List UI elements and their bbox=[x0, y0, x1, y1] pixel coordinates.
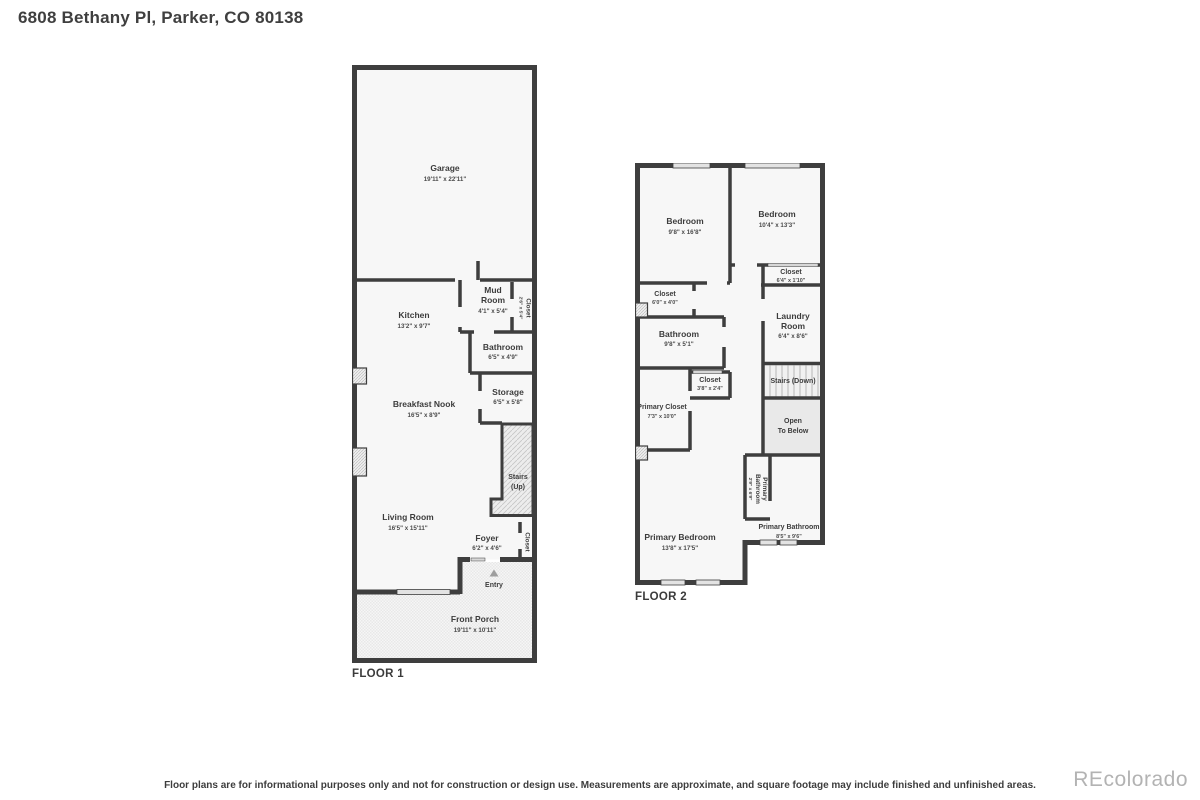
room-storage: Storage 6'5" x 5'8" bbox=[492, 387, 524, 406]
stairs-down-label: Stairs (Down) bbox=[770, 378, 815, 385]
room-foyer: Foyer 6'2" x 4'6" bbox=[472, 533, 502, 552]
primary-closet-name: Primary Closet bbox=[637, 404, 687, 411]
living-room-window bbox=[397, 590, 450, 595]
mud-closet-dims: 2'6" x 5'4" bbox=[518, 297, 524, 320]
closet-hall-dims: 3'8" x 2'4" bbox=[697, 386, 723, 392]
foyer-dims: 6'2" x 4'6" bbox=[472, 545, 502, 552]
garage-name: Garage bbox=[430, 163, 460, 173]
room-stairs-down: Stairs (Down) bbox=[770, 378, 815, 385]
bedroom-right-name: Bedroom bbox=[758, 209, 796, 219]
kitchen-name: Kitchen bbox=[398, 310, 429, 320]
primary-bedroom-window-2 bbox=[696, 580, 720, 585]
open-to-below-name: Open bbox=[784, 418, 802, 425]
primary-closet-dims: 7'3" x 10'0" bbox=[648, 414, 677, 420]
breakfast-nook-dims: 16'5" x 8'9" bbox=[408, 412, 441, 419]
primary-bedroom-dims: 13'8" x 17'5" bbox=[662, 545, 698, 552]
closet-right-dims: 6'4" x 1'10" bbox=[777, 278, 806, 284]
closet-right-sliding-door bbox=[768, 263, 818, 266]
bathroom-f1-name: Bathroom bbox=[483, 342, 524, 352]
floor2-wall-window-1 bbox=[636, 303, 648, 317]
closet-right-name: Closet bbox=[780, 269, 802, 276]
disclaimer-text: Floor plans are for informational purpos… bbox=[0, 780, 1200, 791]
storage-dims: 6'5" x 5'8" bbox=[493, 399, 523, 406]
bathroom-f2-name: Bathroom bbox=[659, 329, 700, 339]
entry-label: Entry bbox=[485, 582, 503, 589]
stairs-up-name2: (Up) bbox=[511, 484, 525, 491]
room-primary-bath-wc: Primary Bathroom 2'9" x 6'9" bbox=[747, 474, 768, 504]
laundry-name2: Room bbox=[781, 321, 806, 331]
primary-bathroom-name: Primary Bathroom bbox=[758, 524, 819, 531]
mud-closet-name: Closet bbox=[525, 298, 532, 318]
front-porch-dims: 19'11" x 10'11" bbox=[454, 627, 497, 634]
room-bathroom-f1: Bathroom 6'5" x 4'9" bbox=[483, 342, 524, 361]
living-wall-window bbox=[353, 448, 367, 476]
bedroom-right-dims: 10'4" x 13'3" bbox=[759, 222, 795, 229]
laundry-name: Laundry bbox=[776, 311, 810, 321]
closet-hall-sliding-door bbox=[693, 370, 722, 373]
kitchen-wall-window bbox=[353, 368, 367, 384]
bedroom-left-dims: 9'8" x 16'8" bbox=[669, 229, 702, 236]
garage-dims: 19'11" x 22'11" bbox=[424, 176, 467, 183]
watermark-logo: REcolorado bbox=[1073, 768, 1188, 792]
bedroom-left-name: Bedroom bbox=[666, 216, 704, 226]
bedroom-left-window bbox=[673, 163, 710, 168]
primary-bedroom-name: Primary Bedroom bbox=[644, 532, 716, 542]
open-to-below-area bbox=[765, 400, 821, 454]
mud-room-dims: 4'1" x 5'4" bbox=[478, 308, 508, 315]
primary-bathroom-dims: 8'5" x 9'6" bbox=[776, 534, 802, 540]
primary-bathroom-window-1 bbox=[760, 540, 777, 545]
primary-bath-wc-name: Primary bbox=[761, 477, 768, 501]
primary-bath-wc-name2: Bathroom bbox=[754, 474, 761, 504]
kitchen-dims: 13'2" x 9'7" bbox=[398, 323, 431, 330]
breakfast-nook-name: Breakfast Nook bbox=[393, 399, 456, 409]
room-bathroom-f2: Bathroom 9'8" x 5'1" bbox=[659, 329, 700, 348]
living-room-dims: 16'5" x 15'11" bbox=[388, 525, 428, 532]
floor1-label: FLOOR 1 bbox=[352, 668, 404, 680]
closet-left-name: Closet bbox=[654, 291, 676, 298]
living-room-name: Living Room bbox=[382, 512, 434, 522]
page-title: 6808 Bethany Pl, Parker, CO 80138 bbox=[18, 8, 303, 28]
open-to-below-name2: To Below bbox=[778, 428, 809, 435]
mud-room-name2: Room bbox=[481, 295, 506, 305]
floor1-plan: Garage 19'11" x 22'11" Kitchen 13'2" x 9… bbox=[352, 65, 537, 665]
floor2-label: FLOOR 2 bbox=[635, 591, 687, 603]
primary-bedroom-window-1 bbox=[661, 580, 685, 585]
foyer-closet-name: Closet bbox=[524, 532, 531, 552]
foyer-name: Foyer bbox=[475, 533, 499, 543]
bathroom-f1-dims: 6'5" x 4'9" bbox=[488, 354, 518, 361]
room-laundry: Laundry Room 6'4" x 8'6" bbox=[776, 311, 810, 340]
floor2-plan: Bedroom 9'8" x 16'8" Bedroom 10'4" x 13'… bbox=[635, 163, 825, 590]
floor-plan-page: 6808 Bethany Pl, Parker, CO 80138 bbox=[0, 0, 1200, 800]
front-porch-name: Front Porch bbox=[451, 614, 499, 624]
room-foyer-closet: Closet bbox=[524, 532, 531, 552]
entry-door bbox=[471, 558, 485, 561]
stairs-up-name: Stairs bbox=[508, 474, 528, 481]
closet-hall-name: Closet bbox=[699, 377, 721, 384]
storage-name: Storage bbox=[492, 387, 524, 397]
primary-bath-wc-dims: 2'9" x 6'9" bbox=[747, 478, 753, 501]
primary-bathroom-window-2 bbox=[780, 540, 797, 545]
floor2-wall-window-2 bbox=[636, 446, 648, 460]
closet-left-dims: 6'0" x 4'0" bbox=[652, 300, 678, 306]
bathroom-f2-dims: 9'8" x 5'1" bbox=[664, 341, 694, 348]
laundry-dims: 6'4" x 8'6" bbox=[778, 333, 808, 340]
mud-room-name: Mud bbox=[484, 285, 501, 295]
bedroom-right-window bbox=[745, 163, 800, 168]
